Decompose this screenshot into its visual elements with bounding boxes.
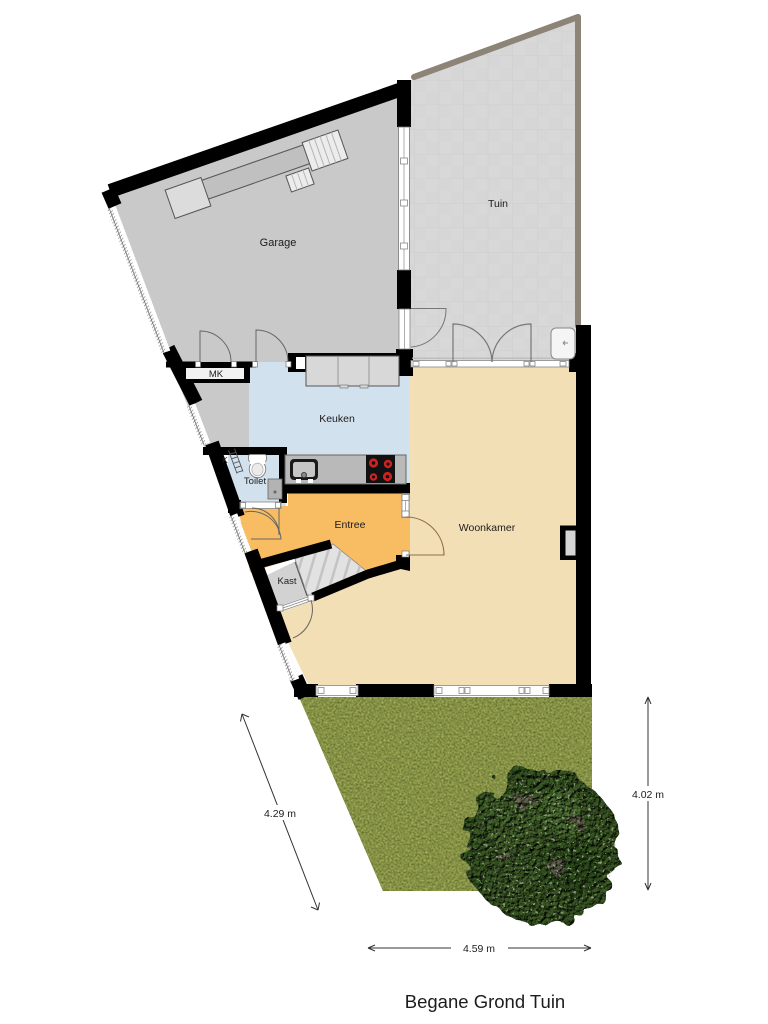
svg-text:4.02 m: 4.02 m — [632, 789, 664, 801]
svg-text:Keuken: Keuken — [319, 413, 355, 425]
svg-text:K: K — [222, 455, 228, 465]
svg-text:Toilet: Toilet — [244, 476, 267, 487]
svg-text:Garage: Garage — [260, 237, 297, 249]
svg-text:4.29 m: 4.29 m — [264, 808, 296, 820]
svg-text:Kast: Kast — [277, 576, 296, 587]
svg-text:Begane Grond Tuin: Begane Grond Tuin — [405, 991, 565, 1012]
svg-text:Tuin: Tuin — [488, 198, 508, 210]
svg-text:Entree: Entree — [335, 519, 366, 531]
svg-text:MK: MK — [209, 369, 224, 380]
svg-text:Woonkamer: Woonkamer — [459, 522, 516, 534]
svg-text:4.59 m: 4.59 m — [463, 943, 495, 955]
